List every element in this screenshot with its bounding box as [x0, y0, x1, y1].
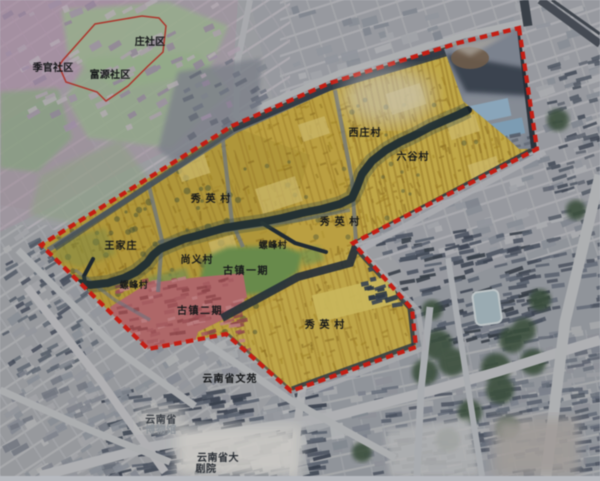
svg-text:庄社区: 庄社区: [135, 35, 166, 48]
svg-text:王家庄: 王家庄: [105, 239, 138, 252]
svg-text:剧院: 剧院: [196, 462, 217, 475]
svg-text:六谷村: 六谷村: [397, 150, 430, 163]
svg-text:古镇一期: 古镇一期: [223, 264, 269, 277]
svg-text:云南省大: 云南省大: [197, 451, 239, 464]
svg-text:云南省文苑: 云南省文苑: [203, 372, 258, 385]
svg-text:博物馆: 博物馆: [145, 423, 177, 436]
svg-text:螺峰村: 螺峰村: [259, 239, 288, 250]
svg-text:螺峰村: 螺峰村: [120, 279, 149, 290]
svg-text:秀 英 村: 秀 英 村: [319, 215, 361, 228]
svg-text:秀 英 村: 秀 英 村: [190, 192, 232, 205]
svg-text:季官社区: 季官社区: [32, 61, 74, 74]
svg-text:富源社区: 富源社区: [90, 68, 131, 81]
svg-text:尚义村: 尚义村: [181, 253, 214, 266]
svg-text:西庄村: 西庄村: [349, 126, 382, 139]
svg-text:秀 英 村: 秀 英 村: [304, 318, 346, 331]
svg-text:古镇二期: 古镇二期: [177, 304, 223, 317]
